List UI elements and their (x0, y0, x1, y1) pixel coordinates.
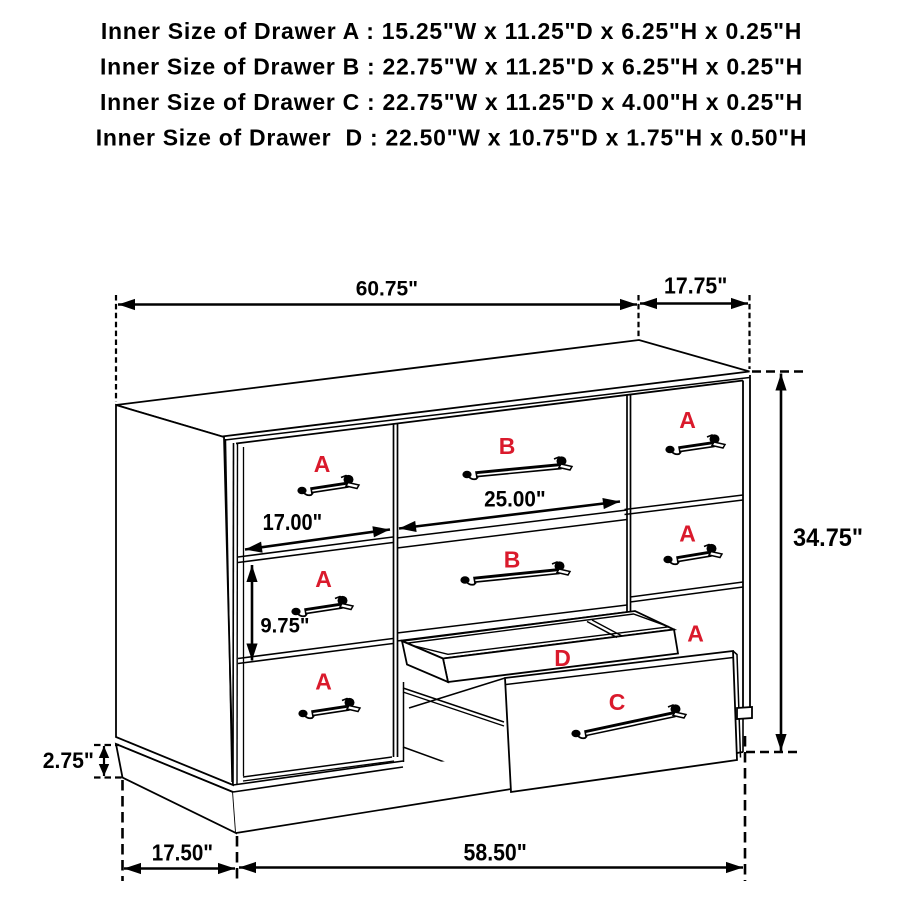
svg-text:C: C (609, 689, 626, 715)
svg-text:A: A (315, 669, 332, 695)
svg-text:A: A (679, 407, 696, 433)
svg-text:58.50": 58.50" (464, 840, 527, 866)
svg-text:A: A (687, 621, 704, 647)
svg-text:17.00": 17.00" (263, 509, 323, 535)
svg-text:D: D (554, 645, 571, 671)
svg-text:2.75": 2.75" (43, 748, 94, 773)
svg-text:34.75": 34.75" (793, 525, 863, 552)
svg-text:B: B (499, 433, 516, 459)
svg-text:A: A (314, 451, 331, 477)
svg-text:60.75": 60.75" (356, 276, 418, 300)
svg-text:A: A (315, 566, 332, 592)
svg-text:17.50": 17.50" (152, 840, 213, 866)
svg-text:Inner Size of Drawer A : 15.25: Inner Size of Drawer A : 15.25"W x 11.25… (101, 18, 802, 44)
svg-text:25.00": 25.00" (484, 487, 546, 512)
svg-text:Inner Size of Drawer D : 22.5: Inner Size of Drawer D : 22.50"W x 10.75… (96, 125, 807, 151)
svg-text:A: A (679, 521, 696, 547)
svg-text:17.75": 17.75" (664, 273, 727, 299)
svg-text:Inner Size of Drawer B : 22.75: Inner Size of Drawer B : 22.75"W x 11.25… (100, 54, 803, 80)
svg-text:B: B (504, 547, 521, 573)
svg-text:9.75": 9.75" (260, 613, 309, 637)
svg-text:Inner Size of Drawer C : 22.75: Inner Size of Drawer C : 22.75"W x 11.25… (100, 89, 803, 115)
